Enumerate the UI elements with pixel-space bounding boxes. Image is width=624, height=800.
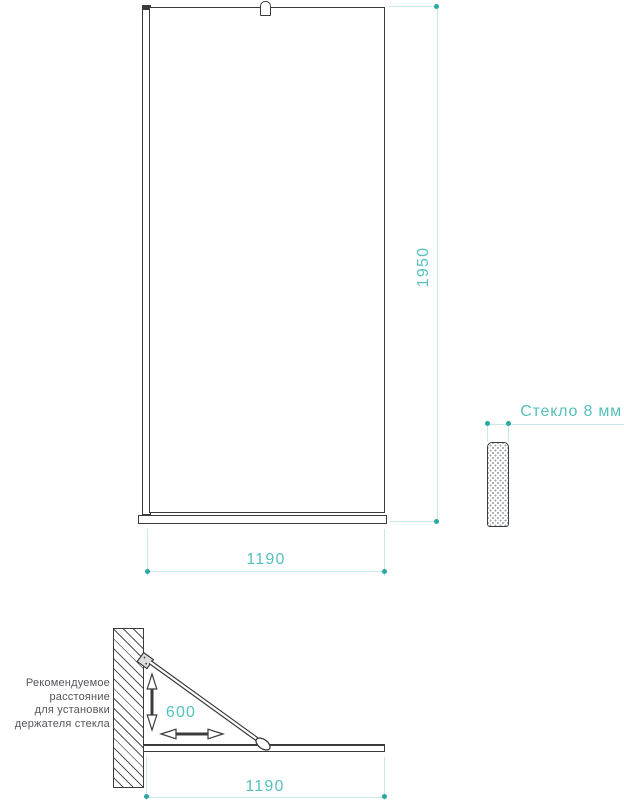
height-dimension-label: 1950 [415, 242, 433, 292]
horizontal-distance-arrow-icon [161, 729, 223, 739]
dimension-dot [145, 569, 150, 574]
glass-holder-clip-icon [260, 1, 271, 16]
dimension-dot [382, 794, 387, 799]
dimension-dot [434, 4, 439, 9]
annotation-line: Рекомендуемое [2, 677, 110, 691]
bottom-rail [138, 515, 387, 524]
glass-thickness-label: Стекло 8 мм [498, 403, 622, 421]
width-dimension-label: 1190 [216, 551, 316, 569]
glass-cross-section [487, 442, 509, 527]
wall-bracket-icon [137, 653, 153, 669]
dimension-dot [382, 569, 387, 574]
holder-distance-label: 600 [156, 704, 206, 722]
annotation-line: для установки [2, 704, 110, 718]
holder-annotation: Рекомендуемое расстояние для установки д… [2, 677, 110, 731]
thickness-extension-left [487, 424, 488, 442]
dimension-dot [506, 421, 511, 426]
dimension-dot [485, 421, 490, 426]
extension-line-top [388, 6, 437, 7]
plan-width-dimension-label: 1190 [215, 778, 315, 796]
annotation-line: расстояние [2, 691, 110, 705]
thickness-extension-right [508, 424, 509, 442]
dimension-dot [144, 794, 149, 799]
extension-line-bottom [389, 521, 437, 522]
dimension-dot [434, 519, 439, 524]
height-dimension-line [437, 6, 438, 522]
width-dimension-line [147, 571, 385, 572]
annotation-line: держателя стекла [2, 718, 110, 732]
shower-screen-dimension-diagram: 1950 1190 Стекло 8 мм [0, 0, 624, 800]
glass-panel-front [149, 7, 385, 513]
